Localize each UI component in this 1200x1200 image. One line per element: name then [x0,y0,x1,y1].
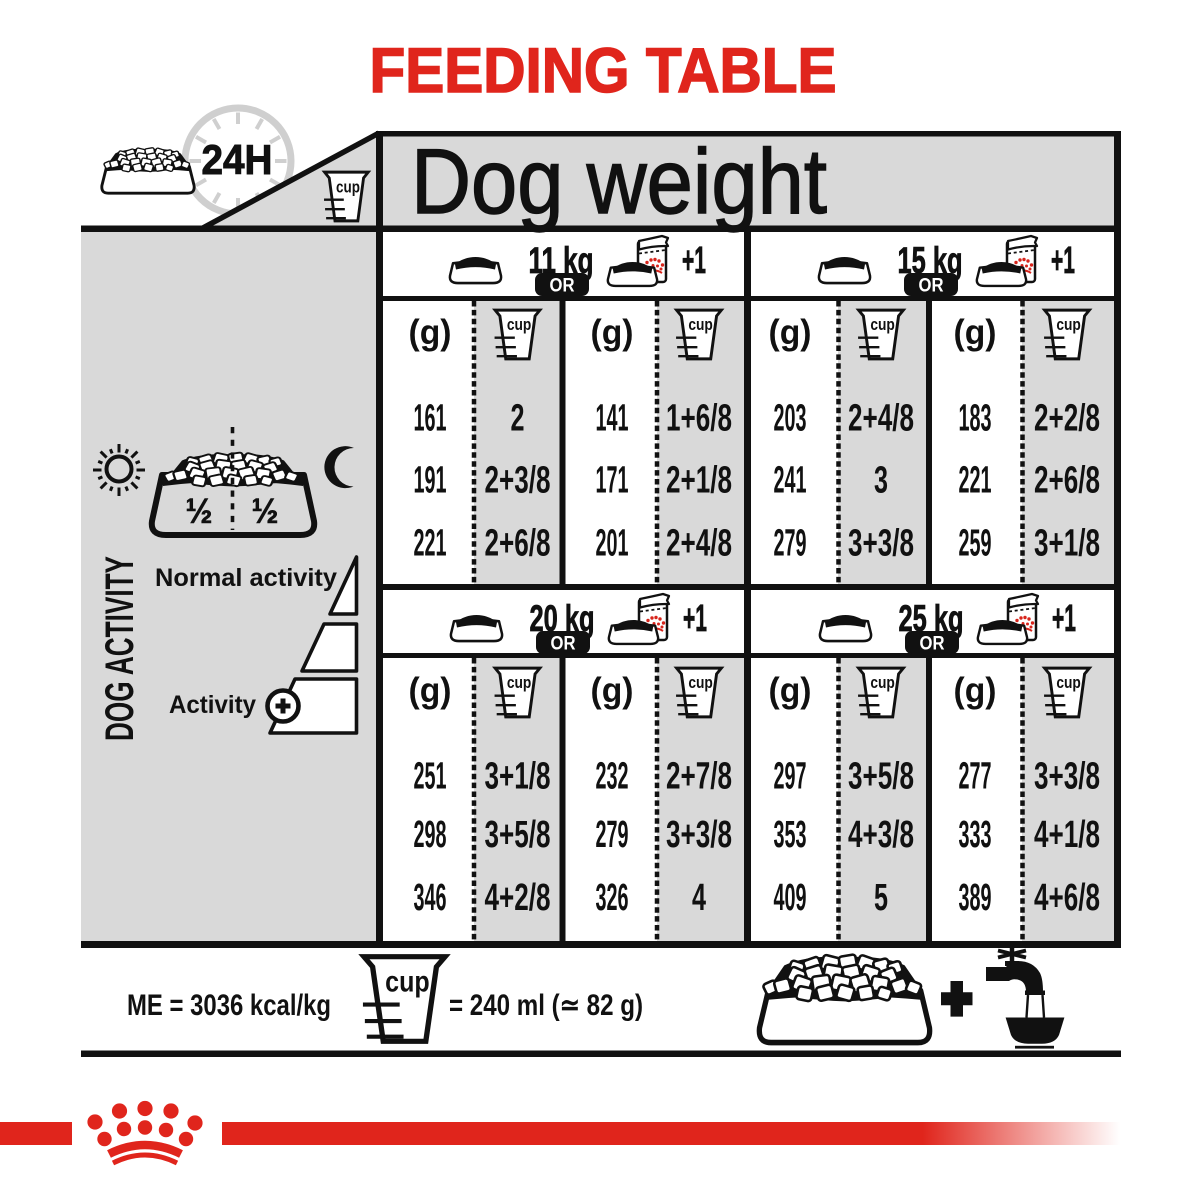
svg-text:241: 241 [774,460,807,502]
svg-text:2: 2 [511,398,525,440]
svg-text:171: 171 [596,460,629,502]
svg-text:½: ½ [252,492,279,531]
svg-text:353: 353 [774,814,807,856]
svg-text:2+7/8: 2+7/8 [666,756,732,798]
svg-text:½: ½ [186,492,213,531]
svg-text:2+6/8: 2+6/8 [485,523,551,565]
svg-text:3+1/8: 3+1/8 [1034,523,1100,565]
svg-text:(g): (g) [769,671,812,710]
svg-text:2+4/8: 2+4/8 [848,398,914,440]
svg-text:4+1/8: 4+1/8 [1034,814,1100,856]
svg-text:2+1/8: 2+1/8 [666,460,732,502]
svg-text:161: 161 [414,398,447,440]
svg-text:297: 297 [774,756,807,798]
svg-text:183: 183 [959,398,992,440]
svg-text:24H: 24H [202,136,273,183]
svg-text:(g): (g) [409,313,452,352]
svg-text:346: 346 [414,877,447,919]
svg-text:Normal activity: Normal activity [155,564,337,592]
svg-text:+1: +1 [1051,240,1075,282]
svg-text:259: 259 [959,523,992,565]
svg-text:4+3/8: 4+3/8 [848,814,914,856]
svg-text:3+1/8: 3+1/8 [485,756,551,798]
svg-text:221: 221 [959,460,992,502]
svg-text:(g): (g) [954,313,997,352]
svg-text:141: 141 [596,398,629,440]
svg-text:4+2/8: 4+2/8 [485,877,551,919]
svg-text:Activity: Activity [169,691,256,719]
svg-text:232: 232 [596,756,629,798]
svg-text:201: 201 [596,523,629,565]
svg-text:+1: +1 [1052,598,1076,640]
svg-text:FEEDING TABLE: FEEDING TABLE [370,36,837,106]
svg-text:191: 191 [414,460,447,502]
svg-text:(g): (g) [409,671,452,710]
svg-text:(g): (g) [591,671,634,710]
svg-text:2+4/8: 2+4/8 [666,523,732,565]
svg-text:3: 3 [874,460,888,502]
svg-text:3+5/8: 3+5/8 [848,756,914,798]
svg-text:277: 277 [959,756,992,798]
svg-text:4+6/8: 4+6/8 [1034,877,1100,919]
svg-text:251: 251 [414,756,447,798]
svg-text:203: 203 [774,398,807,440]
svg-text:221: 221 [414,523,447,565]
svg-text:(g): (g) [769,313,812,352]
svg-text:3+3/8: 3+3/8 [848,523,914,565]
svg-text:279: 279 [774,523,807,565]
svg-text:326: 326 [596,877,629,919]
svg-text:3+5/8: 3+5/8 [485,814,551,856]
svg-text:2+3/8: 2+3/8 [485,460,551,502]
svg-text:+1: +1 [683,598,707,640]
svg-text:3+3/8: 3+3/8 [666,814,732,856]
svg-text:5: 5 [874,877,888,919]
svg-text:333: 333 [959,814,992,856]
svg-text:+1: +1 [682,240,706,282]
svg-text:298: 298 [414,814,447,856]
svg-text:2+2/8: 2+2/8 [1034,398,1100,440]
svg-text:ME = 3036 kcal/kg: ME = 3036 kcal/kg [127,989,331,1022]
svg-text:(g): (g) [591,313,634,352]
svg-text:(g): (g) [954,671,997,710]
svg-text:409: 409 [774,877,807,919]
svg-text:Dog weight: Dog weight [411,131,827,233]
svg-text:389: 389 [959,877,992,919]
svg-text:1+6/8: 1+6/8 [666,398,732,440]
svg-text:279: 279 [596,814,629,856]
svg-text:2+6/8: 2+6/8 [1034,460,1100,502]
svg-text:4: 4 [692,877,706,919]
svg-text:= 240 ml (≃ 82 g): = 240 ml (≃ 82 g) [449,989,643,1022]
svg-text:DOG ACTIVITY: DOG ACTIVITY [98,556,142,741]
svg-text:3+3/8: 3+3/8 [1034,756,1100,798]
